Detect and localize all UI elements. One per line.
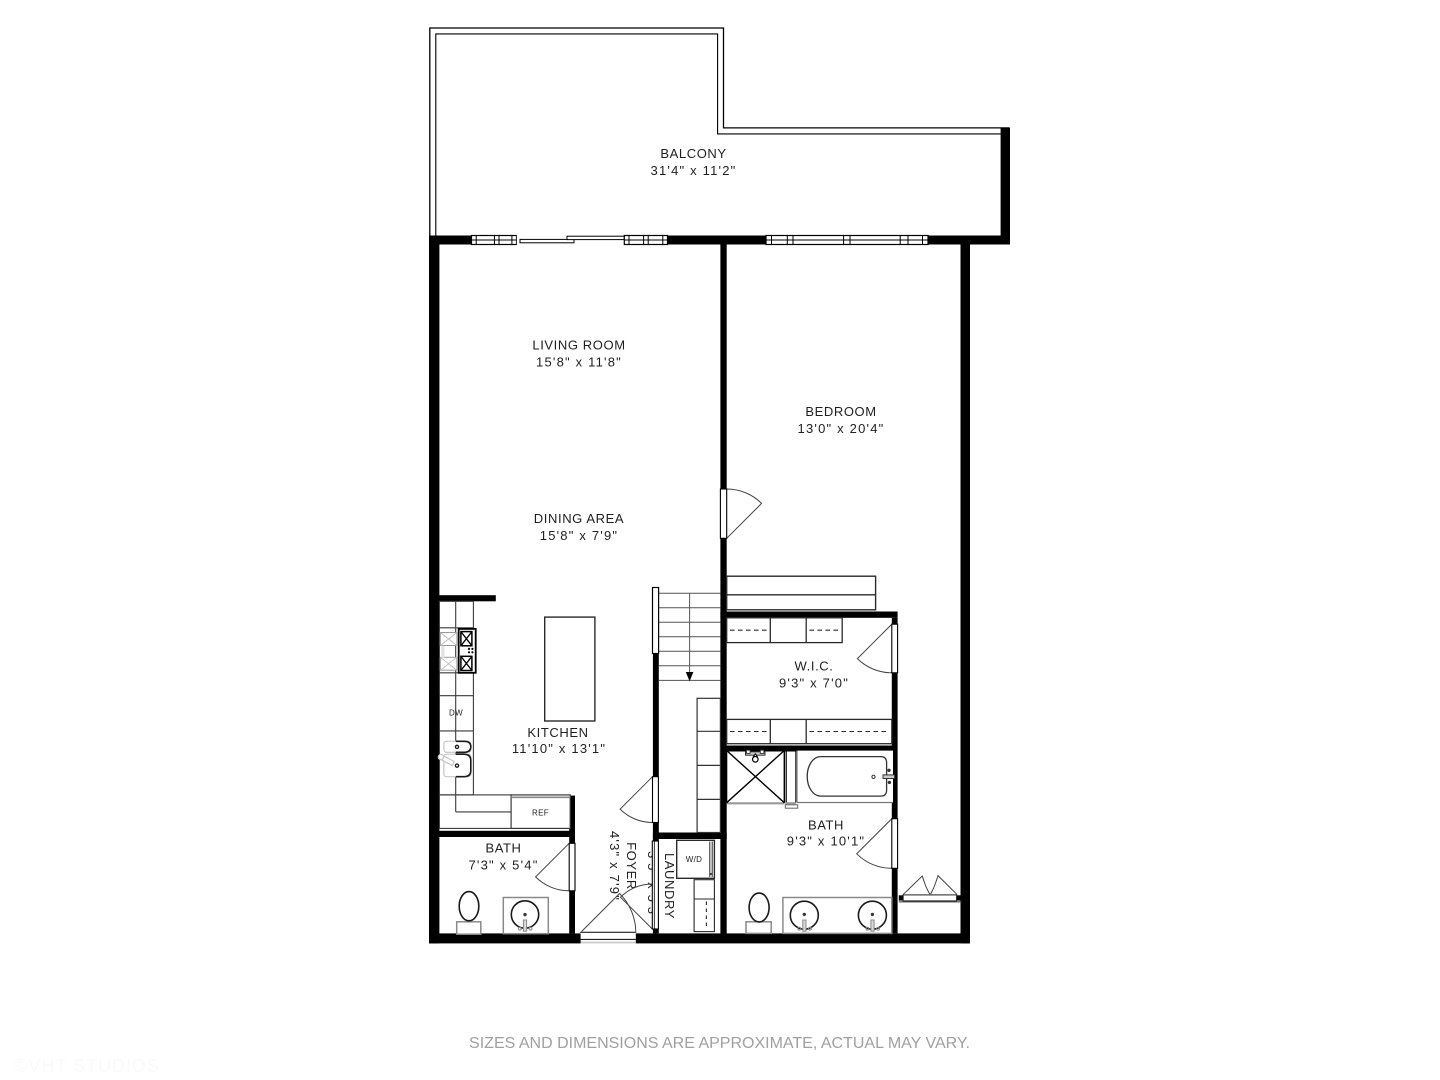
svg-text:DW: DW — [449, 709, 463, 718]
svg-text:9'3" x 7'0": 9'3" x 7'0" — [779, 676, 849, 691]
svg-text:KITCHEN: KITCHEN — [527, 725, 588, 740]
svg-text:LAUNDRY: LAUNDRY — [662, 853, 677, 919]
svg-text:15'8" x 11'8": 15'8" x 11'8" — [536, 355, 622, 370]
svg-text:BALCONY: BALCONY — [660, 146, 726, 161]
svg-text:BEDROOM: BEDROOM — [805, 404, 876, 419]
svg-text:11'10" x 13'1": 11'10" x 13'1" — [512, 741, 606, 756]
svg-text:FOYER: FOYER — [624, 842, 639, 890]
svg-text:9'3" x 10'1": 9'3" x 10'1" — [787, 834, 865, 849]
svg-text:W.I.C.: W.I.C. — [795, 659, 834, 674]
svg-text:LIVING ROOM: LIVING ROOM — [532, 338, 625, 353]
svg-text:31'4" x 11'2": 31'4" x 11'2" — [651, 163, 737, 178]
svg-text:4'3" x 7'9": 4'3" x 7'9" — [607, 831, 622, 901]
svg-text:W/D: W/D — [686, 855, 702, 864]
svg-text:REF: REF — [532, 809, 549, 818]
svg-text:SIZES AND DIMENSIONS ARE APPRO: SIZES AND DIMENSIONS ARE APPROXIMATE, AC… — [469, 1035, 970, 1052]
svg-text:BATH: BATH — [485, 840, 521, 855]
svg-text:15'8" x 7'9": 15'8" x 7'9" — [540, 528, 618, 543]
svg-text:7'3" x 5'4": 7'3" x 5'4" — [468, 858, 538, 873]
svg-text:13'0" x 20'4": 13'0" x 20'4" — [798, 421, 885, 436]
svg-text:BATH: BATH — [808, 818, 844, 833]
svg-text:DINING AREA: DINING AREA — [534, 511, 624, 526]
svg-text:©VHT STUDIOS: ©VHT STUDIOS — [14, 1056, 160, 1076]
